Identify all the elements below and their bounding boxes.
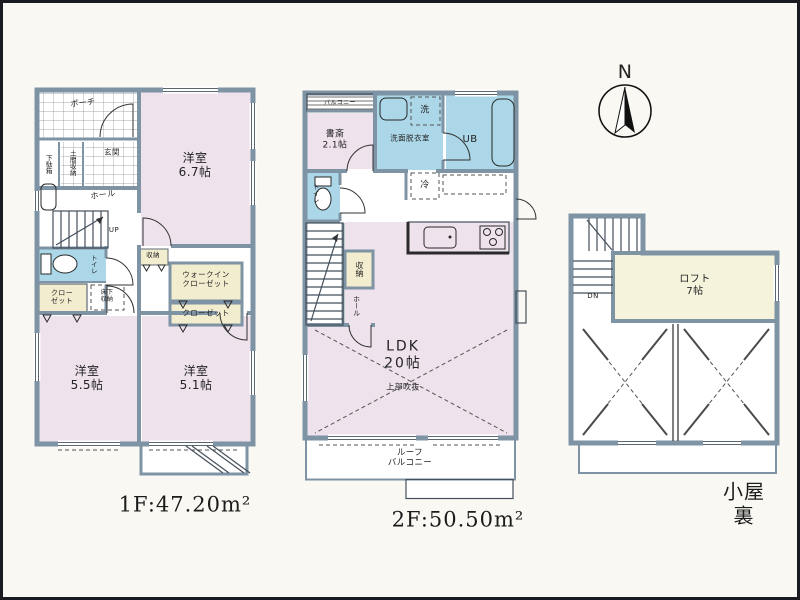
label-closet-a: クロー ゼット xyxy=(51,289,73,306)
toilet1-fixture xyxy=(41,254,77,274)
label-north: N xyxy=(618,61,633,83)
label-closet-b: クローゼット xyxy=(182,310,229,319)
label-study: 書斎 2.1帖 xyxy=(323,129,348,150)
label-roof-balcony: ルーフ バルコニー xyxy=(388,448,432,468)
label-bedroom-67: 洋室 6.7帖 xyxy=(179,151,212,179)
washroom-floor xyxy=(377,95,443,170)
floor2-plan xyxy=(302,90,537,500)
floorplan-image: ポーチ 下駄箱 土間収納 玄関 ホール UP トイレ クロー ゼット 床下 収納… xyxy=(0,0,800,600)
label-washer: 洗 xyxy=(420,106,429,117)
label-shoe-cabinet: 下駄箱 xyxy=(45,154,52,174)
label-hall-2f: ホール xyxy=(353,296,360,317)
unit-bath-floor xyxy=(446,95,516,170)
label-underfloor-storage: 床下 収納 xyxy=(101,289,114,303)
label-doma-storage: 土間収納 xyxy=(69,150,76,176)
label-fridge: 冷 xyxy=(420,181,429,192)
label-floor2-area: 2F:50.50m² xyxy=(392,508,525,533)
label-floor1-area: 1F:47.20m² xyxy=(119,493,252,518)
label-balcony-2f: バルコニー xyxy=(324,99,356,106)
label-open-above: 上部吹抜 xyxy=(386,382,420,391)
label-entrance: 玄関 xyxy=(104,149,120,158)
label-walk-in-closet: ウォークイン クローゼット xyxy=(182,271,229,289)
label-storage-1f: 収納 xyxy=(146,252,160,260)
label-up-1f: UP xyxy=(109,226,119,234)
label-toilet-1f: トイレ xyxy=(90,254,97,274)
label-ldk: LDK 20帖 xyxy=(384,338,422,371)
label-bedroom-55: 洋室 5.5帖 xyxy=(71,364,104,392)
label-storage-2f: 収納 xyxy=(355,261,363,277)
compass-icon xyxy=(599,85,651,137)
label-toilet-2f: トイレ xyxy=(312,183,319,203)
label-attic-area: 小屋裏 xyxy=(718,480,771,527)
label-washroom: 洗面脱衣室 xyxy=(390,135,430,144)
label-loft: ロフト 7帖 xyxy=(679,274,710,298)
label-unit-bath: UB xyxy=(463,134,478,146)
label-bedroom-51: 洋室 5.1帖 xyxy=(180,364,213,392)
label-down: DN xyxy=(587,292,598,300)
attic-plan xyxy=(571,216,781,473)
